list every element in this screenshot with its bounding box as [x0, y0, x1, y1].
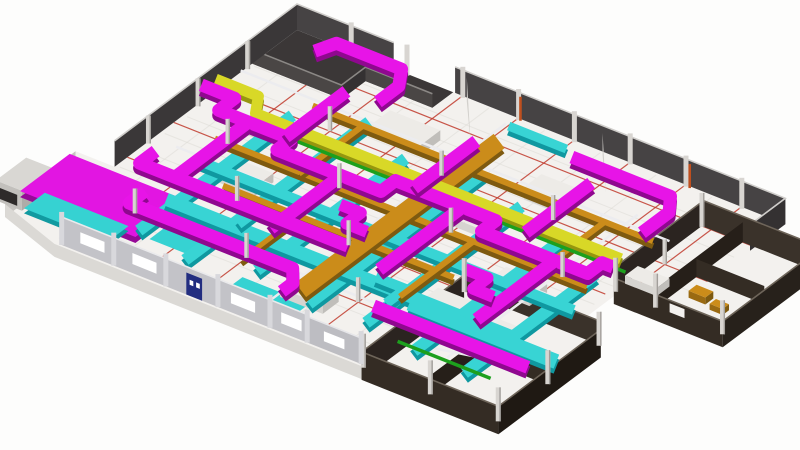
bim-model-canvas[interactable]: [0, 0, 800, 450]
bim-viewport: [0, 0, 800, 450]
